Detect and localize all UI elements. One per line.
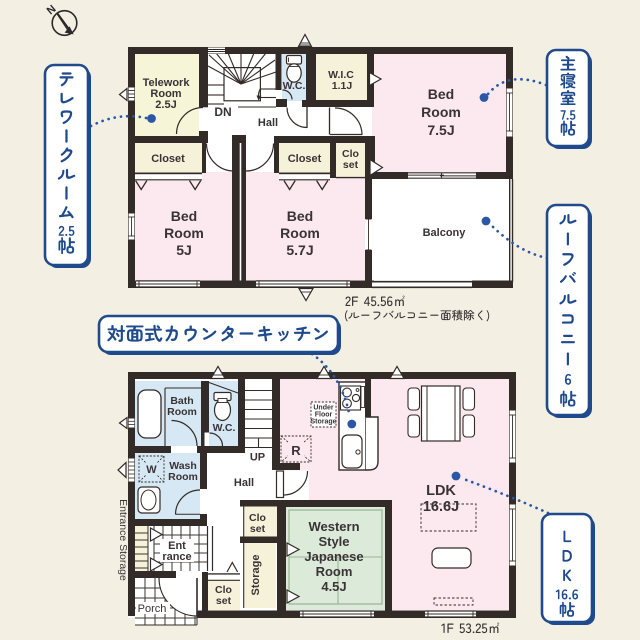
svg-text:Room: Room [421,104,461,120]
svg-text:rance: rance [162,551,191,563]
svg-text:1.1J: 1.1J [332,80,353,92]
svg-text:Style: Style [318,534,349,549]
svg-text:Entrance Storage: Entrance Storage [117,499,129,581]
svg-text:W.C.: W.C. [213,422,236,434]
svg-text:Japanese: Japanese [304,549,363,564]
svg-text:Room: Room [280,225,320,241]
svg-text:W: W [146,464,157,476]
svg-text:Western: Western [308,519,359,534]
svg-text:Closet: Closet [288,153,322,165]
svg-text:Storage: Storage [250,555,262,596]
svg-text:7.5J: 7.5J [427,122,454,138]
svg-text:4.5J: 4.5J [321,579,346,594]
svg-text:5.7J: 5.7J [286,242,313,258]
svg-text:Room: Room [316,564,353,579]
svg-text:Storage: Storage [310,419,336,426]
svg-text:16.6J: 16.6J [423,499,459,515]
svg-text:set: set [250,523,266,535]
svg-text:R: R [291,443,301,458]
svg-text:5J: 5J [176,242,192,258]
svg-text:Floor: Floor [315,412,333,419]
svg-text:W.C.: W.C. [283,80,306,92]
svg-text:Under: Under [313,405,334,412]
svg-text:Room: Room [167,406,197,418]
svg-text:DN: DN [214,105,231,119]
svg-text:set: set [343,159,359,171]
svg-text:Balcony: Balcony [423,227,467,239]
svg-text:set: set [216,595,232,607]
svg-text:Room: Room [168,471,198,483]
svg-text:Bed: Bed [171,208,197,224]
svg-text:Room: Room [164,225,204,241]
svg-text:Porch: Porch [138,603,167,615]
svg-text:Hall: Hall [258,117,278,129]
svg-text:LDK: LDK [426,483,456,499]
svg-text:Closet: Closet [151,153,185,165]
svg-text:Bed: Bed [428,86,454,102]
svg-text:UP: UP [250,452,265,464]
svg-text:Bed: Bed [287,208,313,224]
svg-text:Hall: Hall [234,477,254,489]
svg-text:2.5J: 2.5J [155,99,176,111]
